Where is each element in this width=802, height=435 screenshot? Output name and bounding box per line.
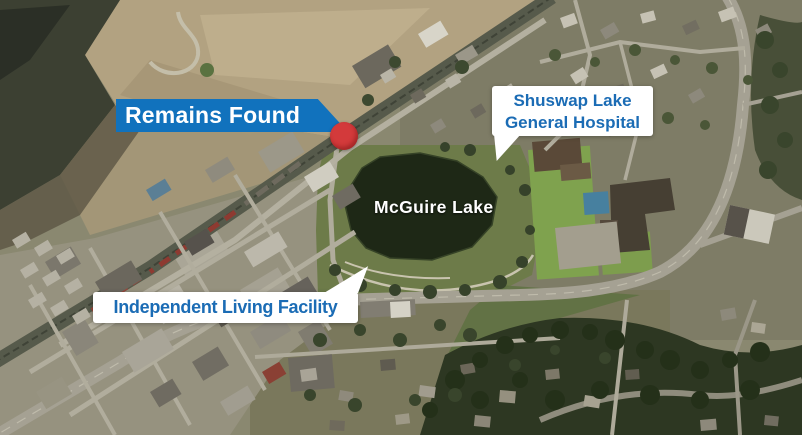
hospital-callout-line2: General Hospital <box>492 112 653 134</box>
facility-callout-label: Independent Living Facility <box>114 297 338 317</box>
hospital-callout-line1: Shuswap Lake <box>492 90 653 112</box>
tennis-courts <box>583 191 609 215</box>
facility-callout: Independent Living Facility <box>93 292 358 323</box>
news-map-graphic: Remains Found Shuswap Lake General Hospi… <box>0 0 802 435</box>
remains-found-label: Remains Found <box>116 99 300 132</box>
hospital-callout: Shuswap Lake General Hospital <box>492 86 653 136</box>
remains-found-banner: Remains Found <box>116 99 348 132</box>
lake-name-label: McGuire Lake <box>374 197 494 218</box>
remains-location-marker <box>330 122 358 150</box>
